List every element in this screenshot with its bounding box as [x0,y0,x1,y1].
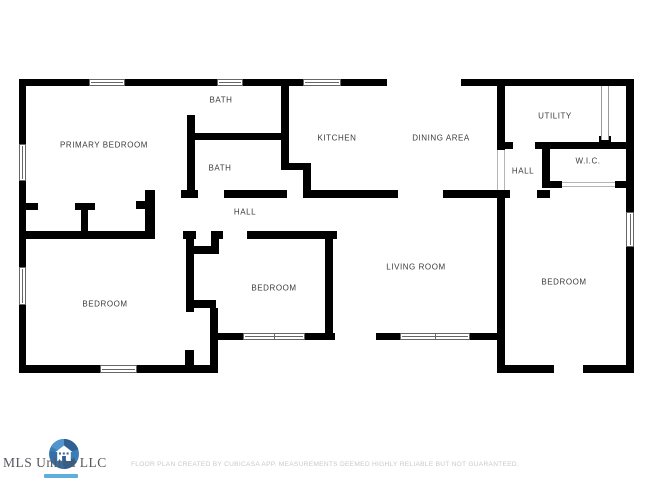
window-glass-line [219,82,241,83]
wall [187,115,195,198]
room-label-bath: BATH [209,164,232,173]
wall [81,210,88,233]
watermark: MLS United LLC [0,436,140,484]
passage-marker [601,86,609,140]
room-label-dining-area: DINING AREA [412,134,470,143]
window-glass-line [305,82,339,83]
wall [310,190,398,198]
room-label-hall: HALL [234,208,256,217]
room-label-hall: HALL [512,167,534,176]
wall [376,333,400,340]
wall [325,231,333,338]
wall [186,300,216,308]
wall [615,181,626,188]
room-label-kitchen: KITCHEN [318,134,357,143]
wall [461,79,634,86]
room-label-utility: UTILITY [538,112,572,121]
wall [75,203,95,210]
wall [137,365,212,373]
window-glass-line [22,269,23,303]
wall [224,190,287,198]
wall [125,79,217,86]
room-label-bedroom: BEDROOM [82,300,127,309]
wall [497,365,554,373]
room-label-bedroom: BEDROOM [541,278,586,287]
window [19,267,26,305]
wall [211,231,219,254]
window-pane-divider [435,334,436,339]
window [626,212,634,247]
wall [210,308,218,373]
wall [185,350,194,365]
window [19,144,26,181]
window [100,365,137,373]
window-glass-line [102,369,135,370]
floorplan-canvas: PRIMARY BEDROOMBATHBATHKITCHENDINING ARE… [0,0,650,488]
window [303,79,341,86]
wall [497,142,513,149]
room-label-bedroom: BEDROOM [251,284,296,293]
wall [548,181,562,188]
wall [497,84,505,150]
wall [19,305,26,373]
passage-marker [497,150,505,190]
wall [191,133,282,140]
wall [136,201,145,209]
wall [443,190,510,198]
window [400,333,470,340]
window-glass-line [22,146,23,179]
window-glass-line [630,214,631,245]
window [243,333,305,340]
window [89,79,125,86]
wall [247,231,337,239]
room-label-primary-bedroom: PRIMARY BEDROOM [60,141,148,150]
window-glass-line [91,82,123,83]
wall [19,365,100,373]
wall [281,85,289,170]
wall [583,365,634,373]
wall [341,79,387,86]
wall [497,198,505,373]
room-label-bath: BATH [210,96,233,105]
window-pane-divider [274,334,275,339]
wall [19,79,26,144]
wall [19,79,89,86]
wall [19,181,26,267]
logo-tagline-mark [44,474,78,478]
wall [26,203,38,210]
floorplan-page: PRIMARY BEDROOMBATHBATHKITCHENDINING ARE… [0,0,650,488]
wall [243,79,303,86]
passage-marker [562,182,615,187]
window [217,79,243,86]
wall [210,333,243,340]
watermark-company-name: MLS United LLC [3,455,133,471]
wall [181,190,198,198]
footer-disclaimer: FLOOR PLAN CREATED BY CUBICASA APP. MEAS… [131,461,519,468]
wall [537,190,550,198]
wall [626,247,634,373]
room-label-w-i-c-: W.I.C. [575,157,600,166]
room-label-living-room: LIVING ROOM [386,263,445,272]
